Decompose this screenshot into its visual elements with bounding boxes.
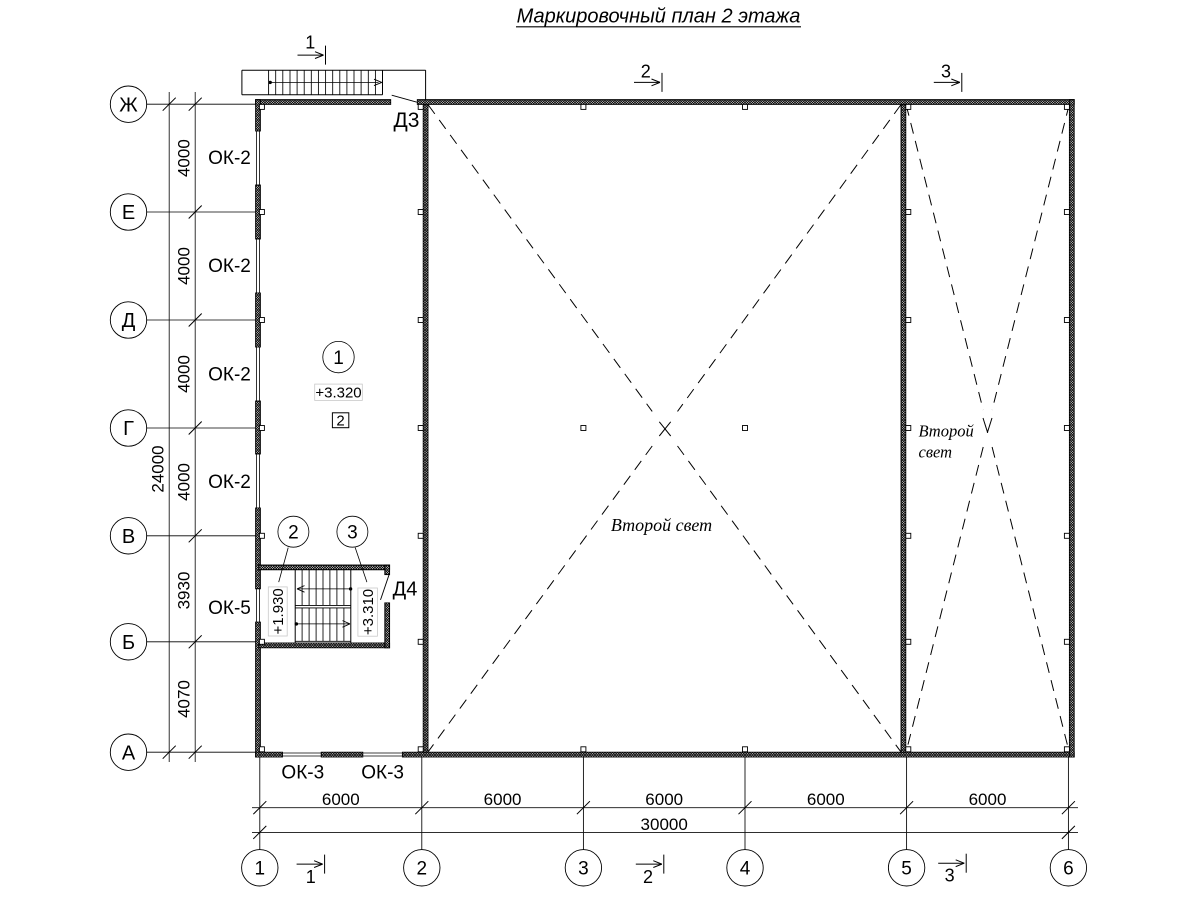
svg-text:Г: Г xyxy=(123,418,134,440)
svg-text:1: 1 xyxy=(333,348,344,369)
svg-text:В: В xyxy=(122,526,135,548)
svg-text:6000: 6000 xyxy=(484,790,522,809)
svg-text:А: А xyxy=(122,742,136,764)
svg-text:Е: Е xyxy=(122,202,135,224)
svg-text:6000: 6000 xyxy=(645,790,683,809)
svg-text:3: 3 xyxy=(945,866,955,886)
svg-text:2: 2 xyxy=(288,523,299,544)
svg-text:24000: 24000 xyxy=(149,445,168,492)
svg-text:4070: 4070 xyxy=(175,680,194,718)
svg-text:3: 3 xyxy=(347,523,358,544)
svg-text:30000: 30000 xyxy=(641,815,688,834)
svg-text:3: 3 xyxy=(941,62,951,82)
svg-text:2: 2 xyxy=(641,62,651,82)
svg-text:+3.320: +3.320 xyxy=(315,385,361,402)
svg-text:6: 6 xyxy=(1063,859,1074,880)
svg-text:ОК-2: ОК-2 xyxy=(208,256,251,277)
svg-text:+1.930: +1.930 xyxy=(270,588,287,634)
svg-text:свет: свет xyxy=(919,443,953,462)
svg-text:3930: 3930 xyxy=(175,572,194,610)
svg-text:ОК-3: ОК-3 xyxy=(281,762,324,783)
svg-text:6000: 6000 xyxy=(807,790,845,809)
svg-text:ОК-2: ОК-2 xyxy=(208,472,251,493)
svg-text:1: 1 xyxy=(255,859,266,880)
svg-text:1: 1 xyxy=(306,867,316,887)
svg-text:ОК-3: ОК-3 xyxy=(361,762,404,783)
svg-text:ОК-5: ОК-5 xyxy=(208,598,251,619)
svg-text:1: 1 xyxy=(305,33,315,53)
svg-text:4000: 4000 xyxy=(175,139,194,177)
svg-text:Второй свет: Второй свет xyxy=(611,515,712,535)
svg-text:Д4: Д4 xyxy=(393,579,418,601)
svg-text:+3.310: +3.310 xyxy=(360,589,377,635)
svg-text:Второй: Второй xyxy=(919,422,975,441)
svg-text:2: 2 xyxy=(336,413,344,430)
svg-text:2: 2 xyxy=(643,867,653,887)
svg-text:6000: 6000 xyxy=(969,790,1007,809)
svg-text:3: 3 xyxy=(578,859,589,880)
svg-text:ОК-2: ОК-2 xyxy=(208,364,251,385)
svg-text:Ж: Ж xyxy=(119,94,138,116)
svg-text:4000: 4000 xyxy=(175,247,194,285)
svg-text:Маркировочный план 2 этажа: Маркировочный план 2 этажа xyxy=(517,6,801,28)
svg-text:2: 2 xyxy=(417,859,428,880)
svg-text:Д: Д xyxy=(122,310,136,332)
svg-text:4000: 4000 xyxy=(175,355,194,393)
svg-text:5: 5 xyxy=(901,859,912,880)
svg-text:Б: Б xyxy=(122,632,135,654)
svg-text:4: 4 xyxy=(740,859,751,880)
svg-text:Д3: Д3 xyxy=(394,109,420,132)
svg-text:ОК-2: ОК-2 xyxy=(208,148,251,169)
svg-text:6000: 6000 xyxy=(322,790,360,809)
svg-text:4000: 4000 xyxy=(175,463,194,501)
